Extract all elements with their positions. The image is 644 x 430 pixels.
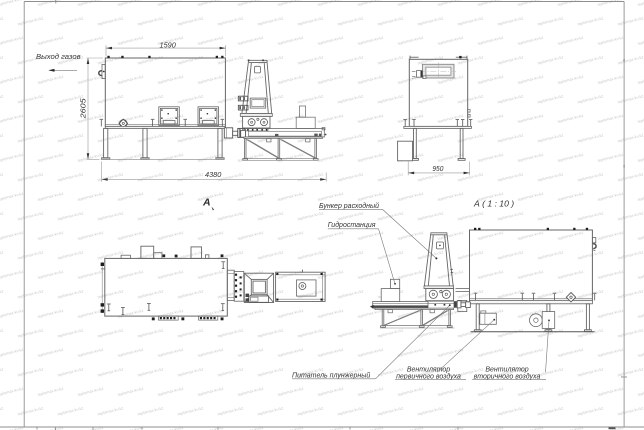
svg-text:А ( 1 : 10 ): А ( 1 : 10 ) bbox=[473, 199, 514, 209]
svg-text:Вентилятор: Вентилятор bbox=[485, 366, 528, 373]
svg-text:Питатель плунжерный: Питатель плунжерный bbox=[292, 371, 370, 379]
svg-text:Выход газов: Выход газов bbox=[36, 52, 81, 61]
svg-text:А: А bbox=[202, 197, 211, 209]
svg-text:вторичного воздуха: вторичного воздуха bbox=[474, 372, 541, 380]
svg-text:Вентилятор: Вентилятор bbox=[407, 366, 450, 373]
svg-text:Гидростанция: Гидростанция bbox=[328, 221, 376, 229]
svg-text:1590: 1590 bbox=[160, 40, 177, 49]
svg-text:4380: 4380 bbox=[205, 170, 222, 179]
svg-text:первичного воздуха: первичного воздуха bbox=[396, 372, 461, 380]
svg-text:950: 950 bbox=[432, 164, 444, 173]
svg-text:2605: 2605 bbox=[78, 97, 87, 119]
svg-text:Бункер расходный: Бункер расходный bbox=[319, 202, 379, 210]
